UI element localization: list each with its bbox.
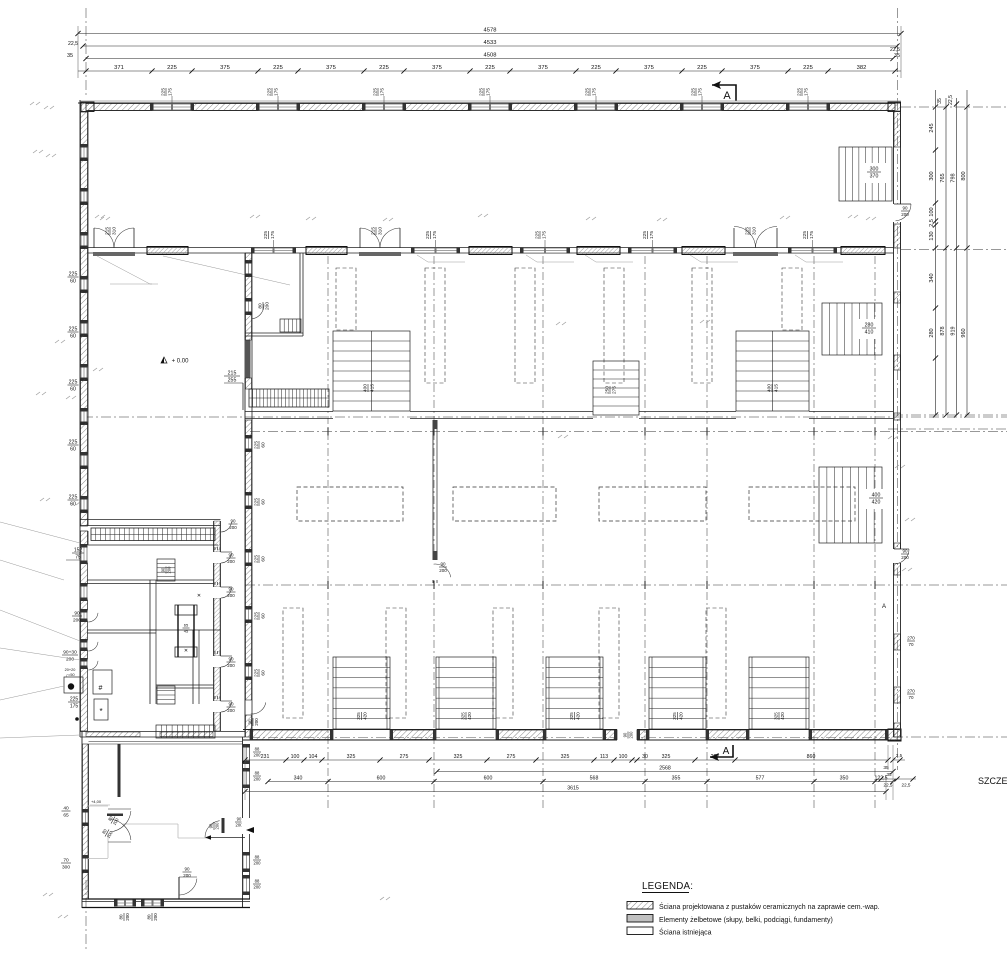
svg-text:225: 225 <box>70 697 79 703</box>
svg-text:35: 35 <box>937 98 943 104</box>
svg-text:245: 245 <box>929 123 935 132</box>
svg-text:80: 80 <box>147 914 152 920</box>
svg-text:340: 340 <box>294 776 303 782</box>
svg-text:80: 80 <box>119 914 124 920</box>
svg-text:798: 798 <box>951 173 957 182</box>
svg-text:#: # <box>99 685 103 692</box>
svg-text:225: 225 <box>535 231 541 239</box>
svg-text:400: 400 <box>872 493 881 499</box>
svg-text:100: 100 <box>929 207 935 216</box>
svg-text:90: 90 <box>228 657 234 662</box>
svg-text:225: 225 <box>69 272 78 278</box>
svg-text:600: 600 <box>484 776 493 782</box>
svg-text:960: 960 <box>961 328 967 337</box>
svg-text:225: 225 <box>803 65 813 71</box>
svg-text:355: 355 <box>672 776 681 782</box>
svg-text:325: 325 <box>561 754 570 760</box>
svg-text:130: 130 <box>929 231 935 240</box>
svg-text:340: 340 <box>929 273 935 282</box>
svg-text:200: 200 <box>183 873 191 878</box>
svg-text:60: 60 <box>260 670 266 676</box>
svg-text:225: 225 <box>254 555 260 563</box>
svg-text:215: 215 <box>228 371 237 377</box>
svg-text:225: 225 <box>69 380 78 386</box>
svg-text:225: 225 <box>161 88 167 96</box>
svg-text:200: 200 <box>254 777 262 782</box>
svg-text:35: 35 <box>886 772 892 777</box>
svg-text:*: * <box>99 707 102 716</box>
svg-text:225: 225 <box>697 65 707 71</box>
svg-text:175: 175 <box>803 88 809 96</box>
svg-text:420: 420 <box>679 712 684 720</box>
svg-text:310: 310 <box>751 227 757 235</box>
svg-text:300: 300 <box>929 171 935 180</box>
svg-text:30: 30 <box>642 754 648 760</box>
svg-text:225: 225 <box>254 441 260 449</box>
svg-text:300: 300 <box>870 167 879 173</box>
svg-text:70: 70 <box>908 642 914 647</box>
svg-text:90: 90 <box>440 562 446 567</box>
svg-text:88: 88 <box>255 855 260 860</box>
svg-text:Elementy żelbetowe (słupy, bel: Elementy żelbetowe (słupy, belki, podcią… <box>659 917 833 924</box>
svg-text:225: 225 <box>167 65 177 71</box>
svg-text:175: 175 <box>591 88 597 96</box>
svg-text:225: 225 <box>69 440 78 446</box>
svg-text:325: 325 <box>356 712 361 720</box>
svg-text:225: 225 <box>485 65 495 71</box>
svg-text:70: 70 <box>908 695 914 700</box>
svg-text:✕: ✕ <box>184 648 188 654</box>
svg-text:225: 225 <box>267 88 273 96</box>
svg-text:225: 225 <box>254 669 260 677</box>
svg-text:90: 90 <box>902 549 908 554</box>
svg-text:200: 200 <box>901 212 909 217</box>
svg-text:225: 225 <box>797 88 803 96</box>
svg-text:+4,00: +4,00 <box>91 799 102 804</box>
svg-text:577: 577 <box>756 776 765 782</box>
svg-text:215: 215 <box>105 227 111 235</box>
svg-text:22,5: 22,5 <box>890 47 900 53</box>
svg-text:400: 400 <box>363 384 369 392</box>
svg-text:200: 200 <box>227 593 235 598</box>
svg-text:200: 200 <box>167 566 172 574</box>
svg-text:200: 200 <box>227 663 235 668</box>
svg-text:415: 415 <box>369 384 375 392</box>
svg-text:LEGENDA:: LEGENDA: <box>642 881 693 892</box>
svg-text:65: 65 <box>63 812 69 818</box>
svg-text:420: 420 <box>780 712 785 720</box>
svg-text:65: 65 <box>184 623 189 628</box>
svg-text:225: 225 <box>642 231 648 239</box>
svg-text:✕: ✕ <box>197 593 201 599</box>
svg-text:175: 175 <box>379 88 385 96</box>
svg-text:375: 375 <box>432 65 442 71</box>
svg-text:200: 200 <box>66 656 74 662</box>
svg-text:Ściana projektowana z pustaków: Ściana projektowana z pustaków ceramiczn… <box>659 902 880 911</box>
svg-text:200: 200 <box>439 568 447 573</box>
svg-text:310: 310 <box>377 227 383 235</box>
svg-text:2,5: 2,5 <box>929 219 935 227</box>
svg-text:200: 200 <box>227 559 235 564</box>
svg-text:175: 175 <box>270 231 276 239</box>
svg-text:420: 420 <box>576 712 581 720</box>
svg-text:35: 35 <box>67 53 73 59</box>
svg-text:90: 90 <box>237 817 242 822</box>
svg-text:90: 90 <box>228 702 234 707</box>
svg-text:A: A <box>723 746 730 757</box>
svg-text:370: 370 <box>870 174 879 180</box>
svg-text:75: 75 <box>75 555 81 561</box>
svg-text:280: 280 <box>929 328 935 337</box>
svg-text:231: 231 <box>261 754 270 760</box>
svg-text:225: 225 <box>373 88 379 96</box>
svg-text:225: 225 <box>254 498 260 506</box>
svg-text:SZCZE: SZCZE <box>978 776 1007 786</box>
svg-text:80: 80 <box>258 303 264 309</box>
svg-text:90: 90 <box>228 553 234 558</box>
svg-text:200: 200 <box>629 731 634 739</box>
svg-text:A: A <box>723 90 731 102</box>
svg-text:325: 325 <box>672 712 677 720</box>
svg-text:225: 225 <box>379 65 389 71</box>
svg-text:400: 400 <box>767 384 773 392</box>
svg-text:+ 0.00: + 0.00 <box>172 359 190 365</box>
svg-text:225: 225 <box>585 88 591 96</box>
svg-text:225: 225 <box>802 231 808 239</box>
svg-text:225: 225 <box>263 231 269 239</box>
svg-text:375: 375 <box>538 65 548 71</box>
svg-text:20+20: 20+20 <box>65 668 76 672</box>
svg-text:152: 152 <box>74 548 83 554</box>
svg-text:225: 225 <box>273 65 283 71</box>
svg-text:325: 325 <box>569 712 574 720</box>
svg-text:90: 90 <box>209 823 214 828</box>
svg-text:175: 175 <box>167 88 173 96</box>
svg-text:568: 568 <box>590 776 599 782</box>
svg-text:100: 100 <box>619 754 628 760</box>
svg-text:600: 600 <box>377 776 386 782</box>
svg-text:175: 175 <box>485 88 491 96</box>
svg-text:88: 88 <box>255 879 260 884</box>
svg-text:350: 350 <box>840 776 849 782</box>
svg-text:60: 60 <box>260 442 266 448</box>
svg-text:60: 60 <box>70 279 76 285</box>
svg-text:Ściana istniejąca: Ściana istniejąca <box>659 928 712 937</box>
svg-text:420: 420 <box>872 500 881 506</box>
svg-text:90: 90 <box>623 732 628 737</box>
svg-text:70: 70 <box>63 858 69 864</box>
svg-text:382: 382 <box>857 65 867 71</box>
svg-text:88: 88 <box>255 747 260 752</box>
svg-text:90: 90 <box>228 587 234 592</box>
svg-text:104: 104 <box>309 754 318 760</box>
svg-text:415: 415 <box>773 384 779 392</box>
svg-text:22,5: 22,5 <box>948 95 954 105</box>
svg-text:60: 60 <box>260 556 266 562</box>
svg-text:270: 270 <box>907 689 915 694</box>
svg-text:325: 325 <box>662 754 671 760</box>
svg-text:60: 60 <box>70 387 76 393</box>
svg-text:765: 765 <box>940 173 946 182</box>
svg-text:4508: 4508 <box>484 53 497 59</box>
svg-text:325: 325 <box>347 754 356 760</box>
svg-text:371: 371 <box>114 65 124 71</box>
svg-text:90: 90 <box>184 867 190 872</box>
svg-text:225: 225 <box>254 612 260 620</box>
svg-text:420: 420 <box>467 712 472 720</box>
svg-text:225: 225 <box>69 327 78 333</box>
svg-text:325: 325 <box>454 754 463 760</box>
svg-text:60: 60 <box>70 334 76 340</box>
svg-text:3615: 3615 <box>567 786 579 792</box>
svg-text:45: 45 <box>184 629 189 634</box>
svg-text:280: 280 <box>865 323 874 329</box>
svg-text:200: 200 <box>901 555 909 560</box>
svg-text:40: 40 <box>63 806 69 812</box>
svg-text:200: 200 <box>73 617 81 623</box>
svg-text:300: 300 <box>62 864 70 870</box>
svg-text:410: 410 <box>865 330 874 336</box>
svg-text:175: 175 <box>649 231 655 239</box>
svg-text:215: 215 <box>745 227 751 235</box>
svg-text:60: 60 <box>260 613 266 619</box>
svg-text:2,5: 2,5 <box>896 753 903 758</box>
svg-text:200: 200 <box>264 302 270 310</box>
svg-text:919: 919 <box>951 326 957 335</box>
svg-text:878: 878 <box>940 326 946 335</box>
svg-text:175: 175 <box>541 231 547 239</box>
svg-text:175: 175 <box>697 88 703 96</box>
svg-text:325: 325 <box>774 712 779 720</box>
svg-text:60: 60 <box>70 447 76 453</box>
svg-text:88: 88 <box>255 771 260 776</box>
svg-text:310: 310 <box>111 227 117 235</box>
svg-text:270: 270 <box>907 636 915 641</box>
svg-text:175: 175 <box>809 231 815 239</box>
svg-text:200: 200 <box>215 822 220 830</box>
svg-text:90+30: 90+30 <box>63 650 77 656</box>
svg-text:225: 225 <box>425 231 431 239</box>
svg-text:4578: 4578 <box>484 28 497 34</box>
svg-text:225: 225 <box>591 65 601 71</box>
svg-text:275: 275 <box>400 754 409 760</box>
svg-text:200: 200 <box>254 861 262 866</box>
svg-text:375: 375 <box>644 65 654 71</box>
svg-text:90: 90 <box>248 719 253 725</box>
svg-text:22,5: 22,5 <box>902 783 911 788</box>
svg-text:200: 200 <box>125 913 130 921</box>
svg-text:200: 200 <box>254 718 259 726</box>
svg-text:860: 860 <box>807 754 816 760</box>
svg-text:215: 215 <box>371 227 377 235</box>
svg-text:60: 60 <box>260 499 266 505</box>
svg-text:250: 250 <box>605 386 611 394</box>
svg-text:800: 800 <box>961 171 967 180</box>
svg-text:22,5: 22,5 <box>884 783 893 788</box>
svg-text:175: 175 <box>273 88 279 96</box>
svg-text:375: 375 <box>750 65 760 71</box>
svg-text:325: 325 <box>461 712 466 720</box>
svg-text:100: 100 <box>291 754 300 760</box>
svg-text:A: A <box>882 604 886 610</box>
svg-text:275: 275 <box>507 754 516 760</box>
svg-text:420: 420 <box>363 712 368 720</box>
svg-text:22,5: 22,5 <box>68 41 78 47</box>
svg-text:225: 225 <box>479 88 485 96</box>
svg-text:375: 375 <box>326 65 336 71</box>
svg-text:90: 90 <box>74 611 80 617</box>
svg-text:175: 175 <box>70 704 79 710</box>
svg-text:225: 225 <box>691 88 697 96</box>
svg-text:200: 200 <box>227 708 235 713</box>
svg-text:375: 375 <box>220 65 230 71</box>
svg-text:113: 113 <box>600 754 608 760</box>
svg-text:90: 90 <box>161 567 166 572</box>
svg-text:200: 200 <box>254 885 262 890</box>
svg-text:225: 225 <box>69 495 78 501</box>
svg-text:200: 200 <box>153 913 158 921</box>
svg-text:2568: 2568 <box>659 766 671 772</box>
svg-text:175: 175 <box>432 231 438 239</box>
svg-text:35: 35 <box>894 53 900 59</box>
svg-text:4533: 4533 <box>484 40 497 46</box>
svg-text:90: 90 <box>902 206 908 211</box>
svg-text:275: 275 <box>611 386 617 394</box>
